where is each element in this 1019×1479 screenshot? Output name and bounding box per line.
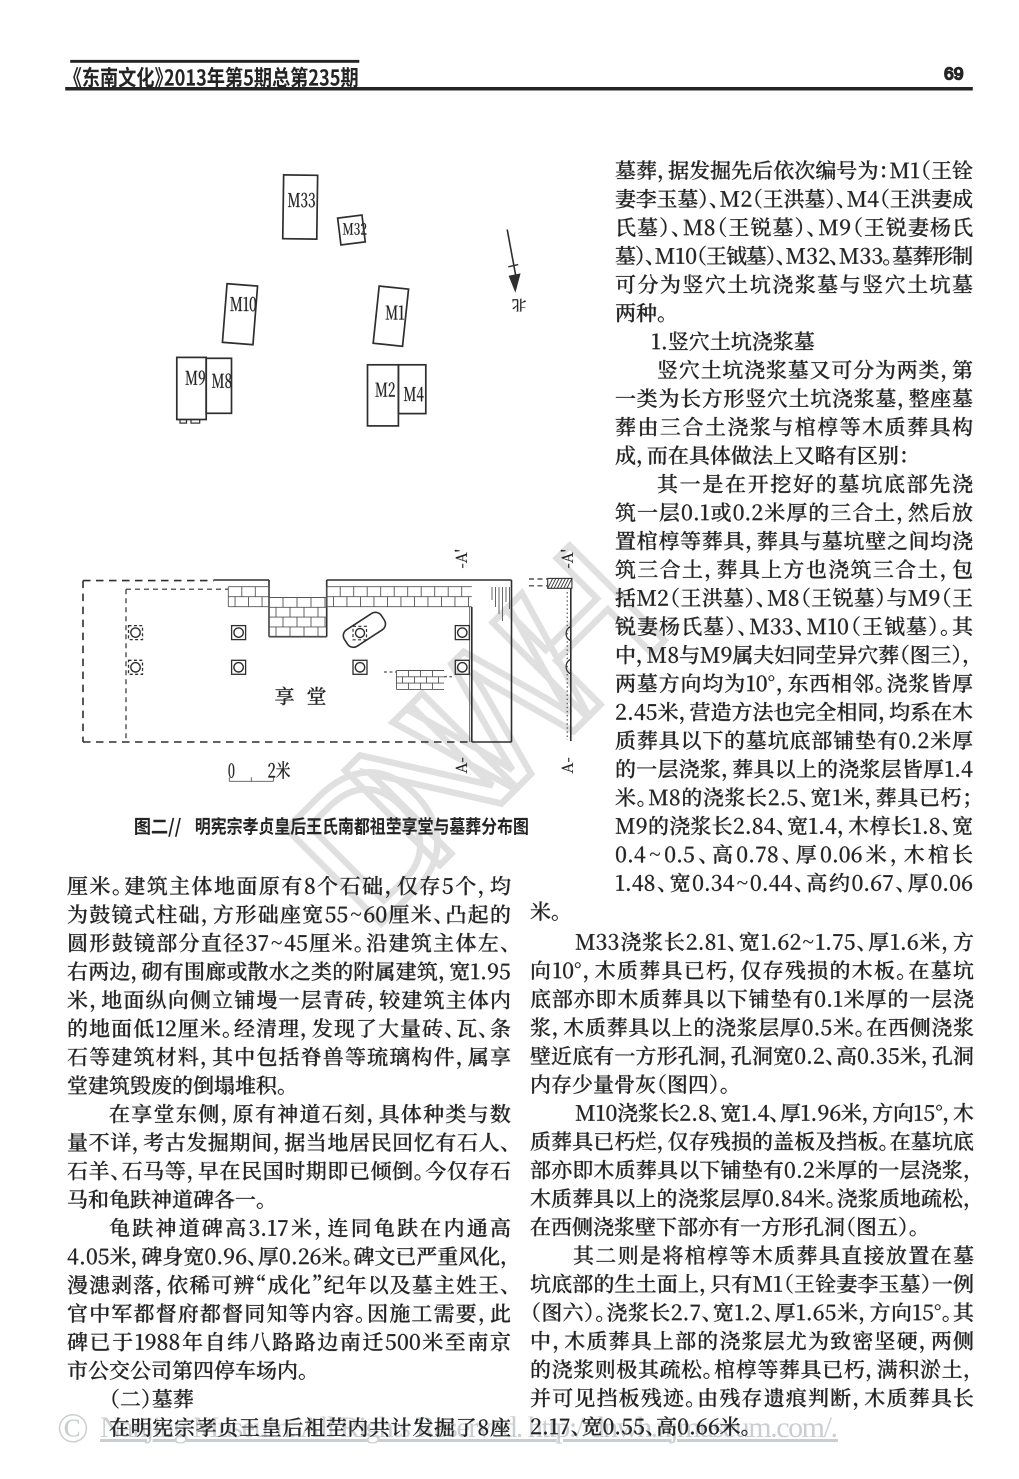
svg-text:©: © xyxy=(57,1406,89,1452)
svg-text:69: 69 xyxy=(944,64,963,84)
